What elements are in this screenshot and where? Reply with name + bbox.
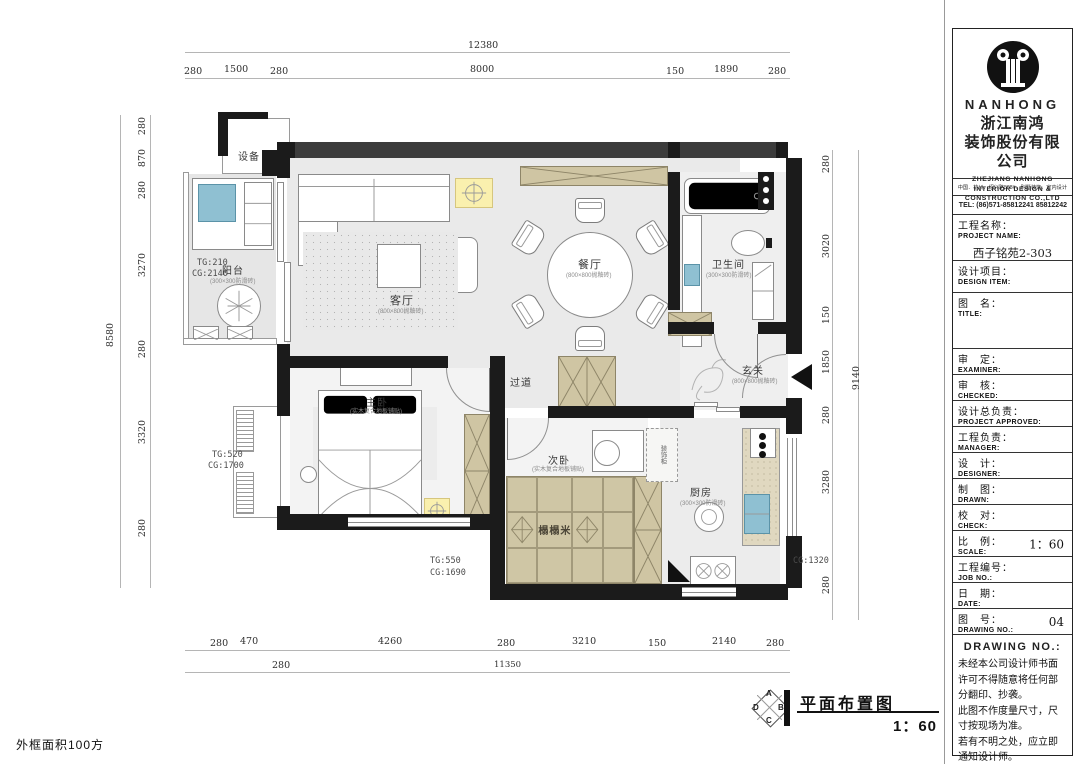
room-sub-weishengjian: (300×300防滑砖) [706,270,752,279]
balcony-slider-panel [284,262,291,342]
kitchen-cabinet-label: 装饰柜 [657,432,667,478]
drawing-scale: 1：60 [893,715,937,736]
dim-top-seg: 150 [666,66,684,77]
washing-machine [198,184,236,222]
annotation-master-cg: CG:1690 [430,568,466,578]
dim-right-total: 9140 [850,361,862,395]
master-wardrobe [464,414,490,528]
second-bedroom-door-leaf [507,418,508,460]
room-label-chufang: 厨房 [690,484,712,499]
bath-mirror-cabinet [752,262,774,320]
field-examiner: 审 定： EXAMINER: [953,349,1072,375]
dim-right-seg: 280 [820,568,832,602]
bath-sink [684,264,700,286]
dim-left-seg: 280 [136,109,148,143]
balcony-slider-panel [277,182,284,262]
refrigerator [744,494,770,534]
field-designer: 设 计： DESIGNER: [953,453,1072,479]
wall [490,584,662,600]
dim-bottom-seg: 2140 [712,636,736,647]
dim-right-seg: 280 [820,147,832,181]
field-design-item: 设计项目： DESIGN ITEM: [953,261,1072,293]
dim-bottom-seg: 3210 [572,636,596,647]
balcony-cabinet [244,182,272,246]
floor-plan-drawing: 榻榻米 装饰柜 [0,0,945,764]
dim-top-seg: 280 [768,66,786,77]
annotation-kitchen-cg: CG:1320 [793,556,829,566]
dim-right-seg: 3020 [820,229,832,263]
dim-top-seg: 8000 [470,64,494,75]
field-scale: 比 例： SCALE: 1：60 [953,531,1072,557]
dim-top-total: 12380 [468,40,498,51]
master-dresser [340,366,412,386]
field-check: 校 对： CHECK: [953,505,1072,531]
wall [490,356,505,586]
compass-bar [784,690,790,726]
dim-bottom-seg: 4260 [378,636,402,647]
wall [640,406,694,418]
wall [283,356,448,368]
dimension-line [185,52,790,53]
dim-bottom-seg2: 280 [272,660,290,671]
dim-top-seg: 280 [184,66,202,77]
tv-cabinet [520,166,668,186]
field-drawn: 制 图： DRAWN: [953,479,1072,505]
notice-line: 此图不作度量尺寸，尺寸按现场为准。 [958,704,1067,735]
dim-left-seg: 280 [136,173,148,207]
company-name-cn-1: 浙江南鸿 [958,115,1067,134]
dim-left-seg: 280 [136,511,148,545]
wall [668,142,680,158]
project-name-value: 西子铭苑2-303 [958,245,1067,261]
planter-box [193,326,219,339]
wall [218,112,268,119]
wall [786,398,802,434]
dim-left-seg: 870 [136,141,148,175]
wall [668,172,680,310]
gas-stove [690,556,736,586]
dim-left-seg: 280 [136,332,148,366]
notice-line: 若有不明之处，应立即通知设计师。 [958,735,1067,766]
field-project-approved: 设计总负责： PROJECT APPROVED: [953,401,1072,427]
area-note: 外框面积100方 [16,736,104,753]
bay-window-radiator [236,410,254,452]
dim-right-seg: 3280 [820,465,832,499]
room-sub-keting: (800×800抛釉砖) [378,306,424,315]
annotation-bay-tg: TG:520 [212,450,243,460]
dim-right-seg: 150 [820,298,832,332]
title-block-panel: NANHONG 浙江南鸿 装饰股份有限公司 ZHEJIANG NANHONG I… [952,28,1073,756]
company-header: NANHONG 浙江南鸿 装饰股份有限公司 ZHEJIANG NANHONG I… [953,29,1072,179]
field-manager: 工程负责： MANAGER: [953,427,1072,453]
field-project-name: 工程名称： PROJECT NAME: 西子铭苑2-303 [953,215,1072,261]
notice-line: 未经本公司设计师书面许可不得随意将任何部分翻印、抄袭。 [958,657,1067,704]
coffee-table [377,244,421,288]
dim-bottom-seg: 470 [240,636,258,647]
annotation-balcony-tg: TG:210 [197,258,228,268]
tatami-wardrobe [634,476,662,584]
kitchen-bottom-window [682,587,736,597]
wall [776,142,788,158]
master-window [348,517,470,527]
drawing-title-underline [797,711,939,713]
field-title: 图 名： TITLE: [953,293,1072,349]
annotation-master-tg: TG:550 [430,556,461,566]
tatami-platform: 榻榻米 [506,476,634,584]
company-name-cn-2: 装饰股份有限公司 [958,134,1067,172]
wall [668,322,714,334]
dim-right-seg: 280 [820,398,832,432]
compass-letter-c: C [766,716,772,725]
notice-section: DRAWING NO.: 未经本公司设计师书面许可不得随意将任何部分翻印、抄袭。… [953,635,1072,768]
wall [740,406,788,418]
dimension-line [185,672,790,673]
toilet-tank [766,238,772,248]
dim-top-seg: 1890 [714,64,738,75]
bay-window-radiator [236,472,254,514]
bedside-table [300,466,317,483]
kitchen-slider-panel [716,407,740,412]
dim-left-seg: 3320 [136,415,148,449]
dim-top-seg: 1500 [224,64,248,75]
dimension-line [832,150,833,620]
compass-letter-d: D [753,703,759,712]
notice-title: DRAWING NO.: [958,641,1067,653]
wall [277,344,290,416]
wall [548,406,640,418]
dim-left-seg: 3270 [136,248,148,282]
compass-letter-a: A [766,689,772,698]
annotation-bay-cg: CG:1700 [208,461,244,471]
room-label-guodao: 过道 [510,374,532,389]
cooktop-counter [750,428,776,458]
wall [758,322,788,334]
dimension-line [120,115,121,588]
company-tel: TEL: (86)571-85812241 85812242 [959,202,1067,209]
drawing-no-value: 04 [1049,615,1064,629]
wall [283,142,788,158]
field-checked: 审 核： CHECKED: [953,375,1072,401]
dining-chair [575,198,605,223]
planter-box [227,326,253,339]
desk-chair [594,440,620,466]
dimension-line [185,650,790,651]
north-reference-symbol: A B C D [750,688,790,728]
compass-letter-b: B [778,703,784,712]
dim-right-seg: 1850 [820,345,832,379]
foyer-sketch-icon [682,350,738,402]
balcony-plant-pot [217,284,261,328]
field-job-no: 工程编号： JOB NO.: [953,557,1072,583]
room-label-xuanguan: 玄关 [742,362,764,377]
dim-left-total: 8580 [104,318,116,352]
dim-bottom-seg: 280 [497,638,515,649]
annotation-balcony-cg: CG:2140 [192,269,228,279]
dim-bottom-seg: 150 [648,638,666,649]
wall [786,158,802,354]
dim-top-seg: 280 [270,66,288,77]
dim-bottom-seg: 280 [766,638,784,649]
kitchen-slider-panel [694,402,718,407]
room-label-weishengjian: 卫生间 [712,256,745,271]
room-sub-ciwo: (实木复合地板铺贴) [532,464,584,473]
field-date: 日 期： DATE: [953,583,1072,609]
tatami-label: 榻榻米 [537,512,572,547]
room-label-shebei: 设备 [238,148,260,163]
nanhong-logo-icon [985,39,1041,95]
hall-cabinet [558,356,616,408]
room-sub-zhuwo: (实木复合地板铺贴) [350,406,402,415]
balcony-left-wall [183,172,189,344]
dimension-line [150,115,151,588]
company-address: 中国．杭州．绍兴路508#．别墅装饰．室内设计 [958,183,1067,190]
entrance-arrow-icon [791,364,812,390]
kitchen-side-window [787,438,797,536]
kitchen-tall-cabinet: 装饰柜 [646,428,678,482]
scale-value: 1：60 [1029,535,1064,552]
room-sub-chufang: (300×300防滑砖) [680,498,726,507]
dim-bottom-seg: 280 [210,638,228,649]
brand-name: NANHONG [958,97,1067,112]
corner-shelf [668,560,690,582]
field-drawing-no: 图 号： DRAWING NO.: 04 [953,609,1072,635]
dim-bottom-seg2: 11350 [494,660,521,670]
ceiling-light [455,178,493,208]
dimension-line [185,78,790,79]
room-sub-canting: (800×800抛釉砖) [566,270,612,279]
bath-shelf [758,172,774,210]
sofa-main [298,174,450,222]
toilet [731,230,765,256]
dining-chair [575,326,605,351]
sheet-divider-line [944,0,945,764]
wall [277,142,290,178]
room-sub-xuanguan: (800×800抛釉砖) [732,376,778,385]
